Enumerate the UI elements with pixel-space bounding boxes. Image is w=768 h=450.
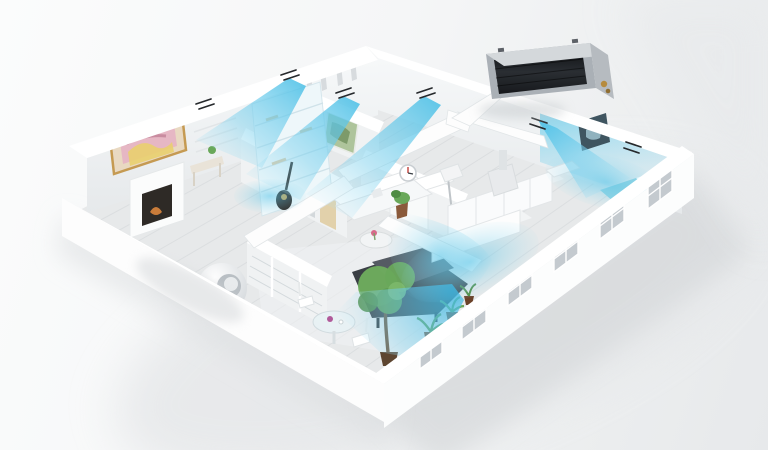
wall-clock [400,165,416,181]
scene-canvas: Apartment cutaway 3D render with conceal… [0,0,768,450]
airflow-pool-library [234,179,306,213]
product-render-figure: Apartment cutaway 3D render with conceal… [0,0,768,450]
apartment-cutaway-render: Apartment cutaway 3D render with conceal… [0,0,768,450]
indoor-unit [478,39,614,119]
unit-drop-shadow [478,101,566,119]
